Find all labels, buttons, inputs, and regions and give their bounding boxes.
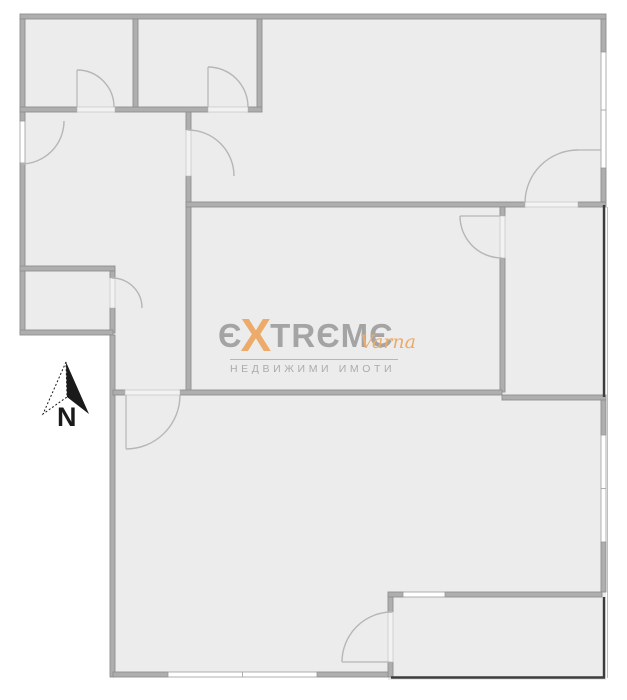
wall-segment [186, 112, 191, 130]
wall-segment [500, 258, 505, 392]
wall-segment [388, 662, 393, 677]
door-threshold [125, 390, 180, 395]
wall-segment [388, 592, 403, 597]
wall-segment [601, 542, 606, 592]
wall-segment [388, 597, 393, 612]
wall-segment [113, 390, 125, 395]
wall-segment [20, 14, 606, 19]
wall-segment [180, 390, 502, 395]
wall-segment [248, 107, 262, 112]
wall-segment [601, 168, 606, 202]
floor-plan-page: N ЄXTRЄMЄ Varna НЕДВИЖИМИ ИМОТИ [0, 0, 627, 700]
wall-segment [20, 19, 25, 121]
door-threshold [186, 130, 191, 176]
wall-segment [186, 202, 525, 207]
floor-area [20, 110, 190, 333]
window [403, 592, 445, 597]
door-threshold [110, 278, 115, 308]
door-threshold [208, 107, 248, 112]
window [20, 121, 25, 163]
door-threshold [500, 216, 505, 258]
wall-segment [578, 202, 606, 207]
floor-plan-drawing: N [0, 0, 627, 700]
north-label: N [57, 402, 77, 432]
wall-segment [133, 19, 138, 107]
wall-segment [20, 330, 113, 335]
wall-segment [186, 176, 191, 393]
wall-segment [20, 266, 115, 271]
wall-segment [20, 163, 25, 333]
wall-segment [445, 592, 602, 597]
door-threshold [77, 107, 115, 112]
wall-segment [115, 107, 208, 112]
wall-segment [502, 395, 606, 400]
floor-areas [20, 14, 606, 680]
wall-segment [110, 335, 115, 677]
wall-segment [601, 19, 606, 52]
north-arrow: N [43, 362, 89, 432]
wall-segment [601, 400, 606, 435]
wall-segment [110, 308, 115, 333]
wall-segment [110, 271, 115, 278]
wall-segment [20, 107, 77, 112]
door-threshold [388, 612, 393, 662]
wall-segment [500, 207, 505, 216]
wall-segment [317, 672, 392, 677]
floor-area [388, 592, 606, 680]
wall-segment [113, 672, 168, 677]
door-threshold [525, 202, 578, 207]
wall-segment [257, 19, 262, 107]
